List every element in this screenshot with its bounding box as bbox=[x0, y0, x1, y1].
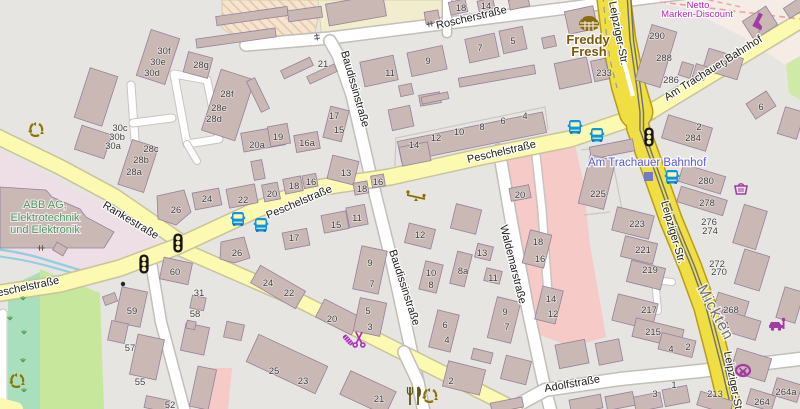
svg-text:21: 21 bbox=[374, 394, 385, 405]
svg-text:25: 25 bbox=[269, 366, 280, 377]
svg-text:20: 20 bbox=[327, 314, 338, 325]
svg-text:24: 24 bbox=[202, 194, 213, 205]
svg-text:10: 10 bbox=[454, 127, 465, 138]
svg-text:8a: 8a bbox=[458, 266, 469, 277]
svg-text:28e: 28e bbox=[211, 103, 227, 114]
svg-text:264a: 264a bbox=[775, 387, 797, 398]
svg-text:215: 215 bbox=[645, 327, 661, 338]
svg-text:57: 57 bbox=[125, 343, 136, 354]
svg-text:Am Trachauer Bahnhof: Am Trachauer Bahnhof bbox=[588, 157, 707, 169]
svg-text:18: 18 bbox=[533, 237, 544, 248]
svg-text:288: 288 bbox=[656, 53, 672, 64]
svg-text:31: 31 bbox=[194, 288, 205, 299]
svg-text:26: 26 bbox=[171, 205, 182, 216]
svg-text:20: 20 bbox=[515, 190, 526, 201]
svg-text:270: 270 bbox=[711, 267, 727, 278]
svg-text:219: 219 bbox=[642, 265, 658, 276]
svg-text:28a: 28a bbox=[126, 167, 143, 178]
svg-text:13: 13 bbox=[341, 168, 352, 179]
svg-text:9: 9 bbox=[502, 307, 507, 318]
svg-text:Marken-Discount: Marken-Discount bbox=[661, 9, 733, 20]
svg-text:223: 223 bbox=[629, 219, 645, 230]
svg-text:15: 15 bbox=[334, 125, 345, 136]
svg-text:14: 14 bbox=[546, 294, 557, 305]
svg-text:4: 4 bbox=[522, 111, 527, 122]
svg-text:30f: 30f bbox=[157, 46, 171, 57]
svg-text:28d: 28d bbox=[206, 114, 222, 125]
svg-text:217: 217 bbox=[641, 305, 657, 316]
svg-text:23: 23 bbox=[298, 376, 309, 387]
svg-text:16: 16 bbox=[373, 177, 384, 188]
svg-text:11: 11 bbox=[352, 213, 362, 224]
svg-text:278: 278 bbox=[699, 198, 715, 209]
svg-text:20a: 20a bbox=[249, 140, 266, 151]
svg-text:und Elektronik: und Elektronik bbox=[10, 224, 80, 236]
svg-text:30d: 30d bbox=[144, 68, 160, 79]
svg-text:Elektrotechnik: Elektrotechnik bbox=[10, 212, 80, 224]
svg-text:59: 59 bbox=[127, 306, 138, 317]
svg-text:26: 26 bbox=[232, 248, 243, 259]
svg-text:22: 22 bbox=[284, 288, 295, 299]
svg-text:3: 3 bbox=[367, 322, 372, 333]
svg-text:15: 15 bbox=[331, 220, 342, 231]
svg-text:18: 18 bbox=[456, 3, 467, 14]
svg-text:2: 2 bbox=[696, 122, 701, 133]
svg-text:2: 2 bbox=[685, 342, 690, 353]
svg-text:7: 7 bbox=[504, 322, 509, 333]
svg-text:11: 11 bbox=[385, 68, 395, 79]
svg-text:221: 221 bbox=[635, 245, 651, 256]
svg-text:4: 4 bbox=[668, 344, 673, 355]
svg-text:10: 10 bbox=[426, 268, 437, 279]
svg-text:28f: 28f bbox=[220, 89, 234, 100]
svg-text:8: 8 bbox=[428, 280, 433, 291]
svg-text:28c: 28c bbox=[143, 144, 159, 155]
svg-text:5: 5 bbox=[510, 36, 515, 47]
svg-text:16: 16 bbox=[535, 254, 546, 265]
svg-text:Fresh: Fresh bbox=[571, 44, 606, 59]
svg-text:8: 8 bbox=[479, 122, 484, 133]
svg-text:7: 7 bbox=[369, 279, 374, 290]
svg-text:13: 13 bbox=[477, 248, 488, 259]
svg-text:11: 11 bbox=[488, 273, 498, 284]
svg-text:12: 12 bbox=[548, 309, 559, 320]
svg-text:2: 2 bbox=[448, 376, 453, 387]
svg-text:264: 264 bbox=[754, 397, 770, 408]
svg-text:9: 9 bbox=[367, 258, 372, 269]
svg-text:6: 6 bbox=[442, 320, 447, 331]
svg-text:6: 6 bbox=[758, 102, 763, 113]
svg-text:16a: 16a bbox=[299, 138, 316, 149]
svg-text:9: 9 bbox=[425, 56, 430, 67]
svg-text:30a: 30a bbox=[105, 141, 122, 152]
svg-text:7: 7 bbox=[477, 43, 482, 54]
svg-text:6: 6 bbox=[500, 116, 505, 127]
svg-text:225: 225 bbox=[590, 189, 606, 200]
svg-text:58: 58 bbox=[190, 309, 201, 320]
svg-text:12: 12 bbox=[415, 230, 426, 241]
svg-text:ABB AG,: ABB AG, bbox=[23, 199, 66, 211]
svg-text:12: 12 bbox=[431, 133, 442, 144]
svg-text:55: 55 bbox=[135, 377, 146, 388]
svg-text:290: 290 bbox=[649, 31, 665, 42]
svg-text:17: 17 bbox=[329, 111, 340, 122]
svg-text:24: 24 bbox=[263, 278, 274, 289]
svg-text:22: 22 bbox=[238, 195, 249, 206]
svg-text:21: 21 bbox=[318, 59, 329, 70]
svg-text:20: 20 bbox=[267, 189, 278, 200]
svg-text:16: 16 bbox=[306, 177, 317, 188]
svg-text:5: 5 bbox=[365, 306, 370, 317]
svg-text:4: 4 bbox=[444, 335, 449, 346]
svg-text:28b: 28b bbox=[133, 155, 149, 166]
svg-text:213: 213 bbox=[707, 389, 723, 400]
svg-text:52: 52 bbox=[165, 400, 176, 409]
svg-text:30e: 30e bbox=[150, 57, 166, 68]
svg-text:3: 3 bbox=[652, 389, 657, 400]
svg-text:274: 274 bbox=[702, 226, 718, 237]
svg-text:18: 18 bbox=[357, 184, 368, 195]
svg-text:280: 280 bbox=[698, 176, 714, 187]
svg-text:28g: 28g bbox=[193, 60, 209, 71]
svg-text:18: 18 bbox=[289, 181, 300, 192]
svg-text:233: 233 bbox=[596, 68, 612, 79]
svg-text:19: 19 bbox=[273, 132, 284, 143]
svg-text:17: 17 bbox=[289, 233, 300, 244]
svg-text:14: 14 bbox=[409, 140, 420, 151]
svg-text:60: 60 bbox=[170, 267, 181, 278]
svg-text:284: 284 bbox=[685, 133, 701, 144]
svg-text:1: 1 bbox=[671, 380, 676, 391]
